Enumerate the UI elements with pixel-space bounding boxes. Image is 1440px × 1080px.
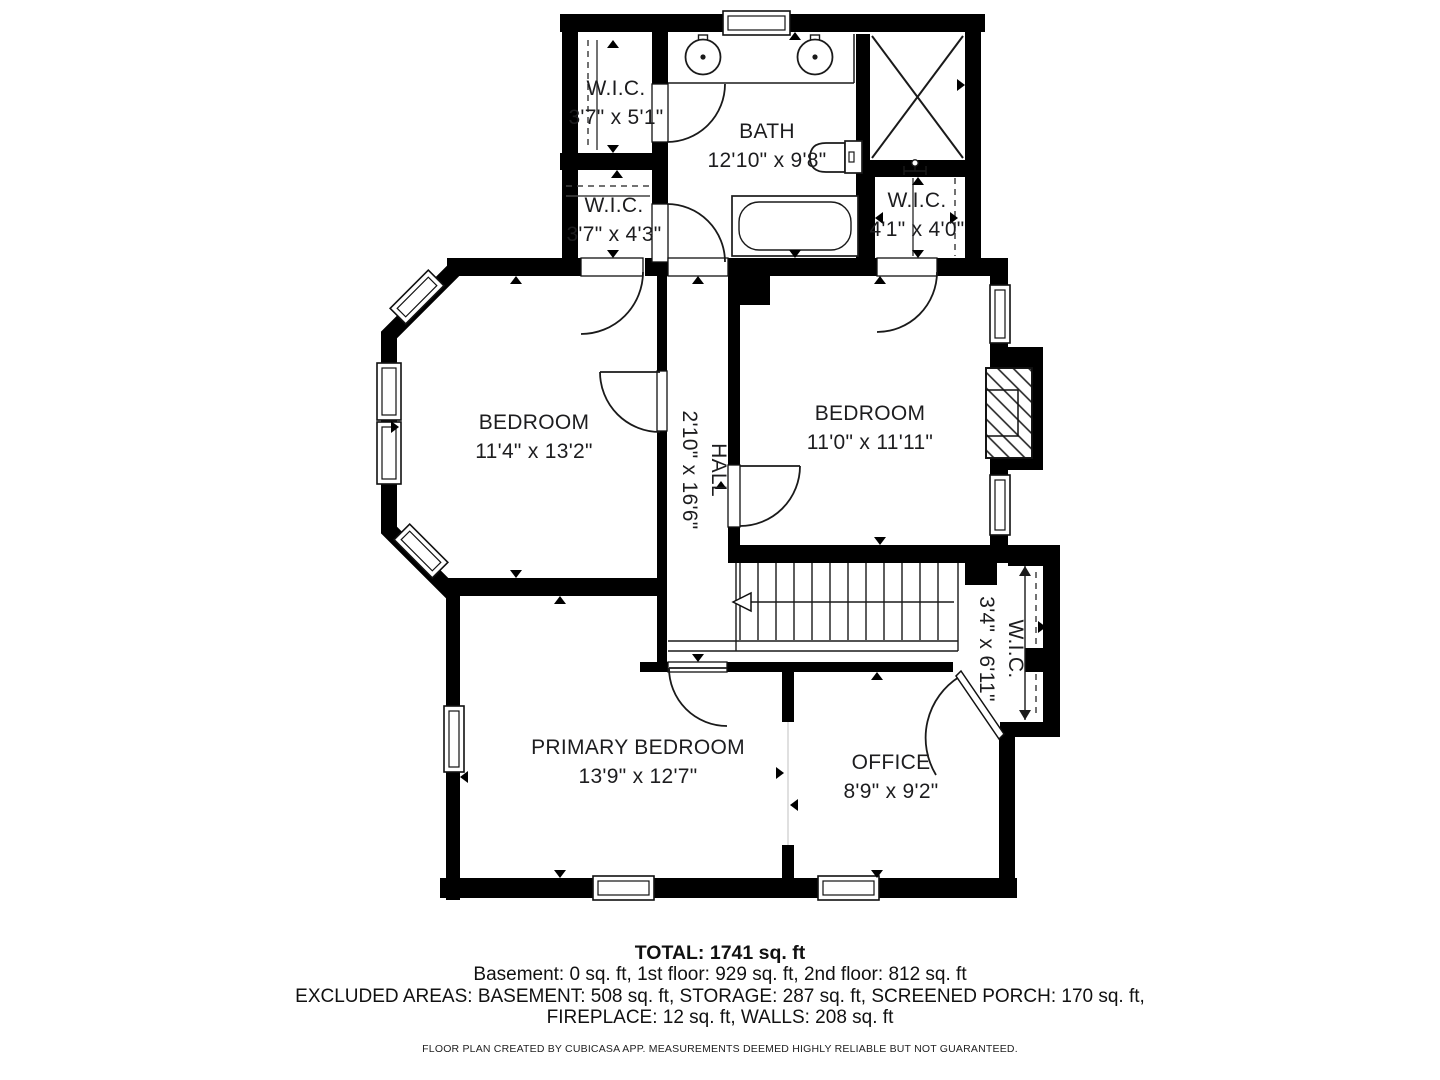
room-name: PRIMARY BEDROOM xyxy=(531,733,745,762)
room-label-hall: HALL 2'10" x 16'6" xyxy=(675,410,733,529)
room-name: BATH xyxy=(707,117,826,146)
room-label-wic-top-left: W.I.C. 3'7" x 5'1" xyxy=(568,74,663,132)
excluded-areas-line1: EXCLUDED AREAS: BASEMENT: 508 sq. ft, ST… xyxy=(0,986,1440,1008)
room-name: OFFICE xyxy=(843,748,938,777)
floor-areas: Basement: 0 sq. ft, 1st floor: 929 sq. f… xyxy=(0,964,1440,986)
room-name: W.I.C. xyxy=(566,191,661,220)
room-dims: 13'9" x 12'7" xyxy=(531,762,745,791)
disclaimer-text: FLOOR PLAN CREATED BY CUBICASA APP. MEAS… xyxy=(0,1043,1440,1055)
room-label-bath: BATH 12'10" x 9'8" xyxy=(707,117,826,175)
excluded-areas-line2: FIREPLACE: 12 sq. ft, WALLS: 208 sq. ft xyxy=(0,1007,1440,1029)
room-name: BEDROOM xyxy=(807,399,933,428)
room-dims: 3'7" x 5'1" xyxy=(568,103,663,132)
fireplace-icon xyxy=(986,368,1032,458)
bathtub-icon xyxy=(732,196,858,256)
room-name: HALL xyxy=(704,410,733,529)
room-label-wic-right: W.I.C. 4'1" x 4'0" xyxy=(869,186,964,244)
room-name: W.I.C. xyxy=(869,186,964,215)
room-dims: 8'9" x 9'2" xyxy=(843,777,938,806)
room-dims: 2'10" x 16'6" xyxy=(675,410,704,529)
sink-icon xyxy=(686,35,721,75)
room-label-wic-mid-left: W.I.C. 3'7" x 4'3" xyxy=(566,191,661,249)
room-label-primary-bedroom: PRIMARY BEDROOM 13'9" x 12'7" xyxy=(531,733,745,791)
room-dims: 3'7" x 4'3" xyxy=(566,220,661,249)
room-dims: 3'4" x 6'11" xyxy=(972,596,1001,702)
room-dims: 4'1" x 4'0" xyxy=(869,215,964,244)
staircase xyxy=(668,563,958,651)
shower-icon xyxy=(872,36,963,158)
room-name: W.I.C. xyxy=(1001,596,1030,702)
room-dims: 11'4" x 13'2" xyxy=(475,437,593,466)
room-name: BEDROOM xyxy=(475,408,593,437)
total-area: TOTAL: 1741 sq. ft xyxy=(0,942,1440,964)
room-label-wic-lower-right: W.I.C. 3'4" x 6'11" xyxy=(972,596,1030,702)
room-dims: 11'0" x 11'11" xyxy=(807,428,933,457)
room-label-bedroom-left: BEDROOM 11'4" x 13'2" xyxy=(475,408,593,466)
room-dims: 12'10" x 9'8" xyxy=(707,146,826,175)
area-summary: TOTAL: 1741 sq. ft Basement: 0 sq. ft, 1… xyxy=(0,942,1440,1055)
room-label-bedroom-right: BEDROOM 11'0" x 11'11" xyxy=(807,399,933,457)
room-name: W.I.C. xyxy=(568,74,663,103)
room-label-office: OFFICE 8'9" x 9'2" xyxy=(843,748,938,806)
sink-icon xyxy=(798,35,833,75)
floor-plan-page: W.I.C. 3'7" x 5'1" W.I.C. 3'7" x 4'3" BA… xyxy=(0,0,1440,1080)
